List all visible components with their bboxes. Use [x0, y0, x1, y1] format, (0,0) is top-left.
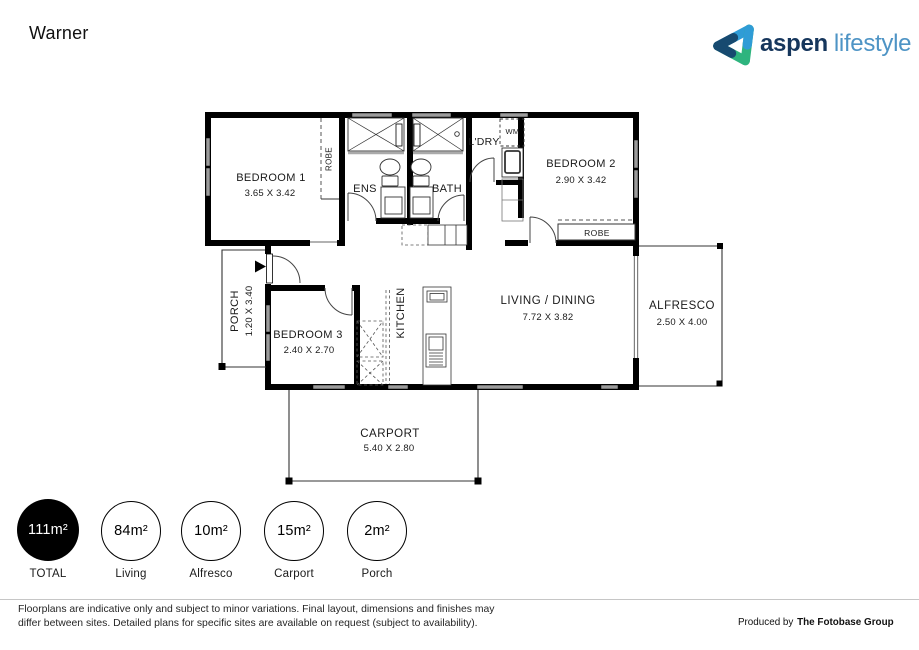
living-dining-dims: 7.72 X 3.82 — [523, 312, 574, 323]
alfresco-sliding-door — [633, 256, 639, 358]
living-area-circle: 84m² — [101, 501, 161, 561]
bath-label: BATH — [432, 183, 462, 195]
outdoor-outlines — [222, 246, 722, 481]
porch-area-label: Porch — [337, 568, 417, 580]
living-area-value: 84m² — [114, 523, 148, 539]
bedroom3-dims: 2.40 X 2.70 — [284, 345, 335, 356]
total-area-circle: 111m² — [17, 499, 79, 561]
area-alfresco: 10m² Alfresco — [171, 499, 251, 561]
alfresco-area-label: Alfresco — [171, 568, 251, 580]
total-area-value: 111m² — [28, 522, 68, 538]
bedroom2-dims: 2.90 X 3.42 — [556, 175, 607, 186]
carport-area-label: Carport — [254, 568, 334, 580]
alfresco-dims: 2.50 X 4.00 — [657, 317, 708, 328]
bedroom1-dims: 3.65 X 3.42 — [245, 188, 296, 199]
porch-dims: 1.20 X 3.40 — [244, 286, 255, 337]
bedroom3-label: BEDROOM 3 — [273, 329, 343, 341]
alfresco-label: ALFRESCO — [649, 300, 715, 312]
ensuite-label: ENS — [353, 183, 377, 195]
bedroom1-label: BEDROOM 1 — [236, 172, 306, 184]
produced-by: Produced byThe Fotobase Group — [738, 616, 894, 628]
produced-by-prefix: Produced by — [738, 616, 793, 628]
carport-dims: 5.40 X 2.80 — [364, 443, 415, 454]
carport-area-circle: 15m² — [264, 501, 324, 561]
area-total: 111m² TOTAL — [8, 499, 88, 561]
outline-corner-markers — [219, 243, 724, 485]
hall-cupboards — [402, 225, 467, 245]
alfresco-area-circle: 10m² — [181, 501, 241, 561]
entry-arrow-icon — [255, 261, 266, 273]
area-porch: 2m² Porch — [337, 499, 417, 561]
porch-label: PORCH — [229, 290, 241, 332]
carport-label: CARPORT — [360, 428, 420, 440]
living-area-label: Living — [91, 568, 171, 580]
alfresco-area-value: 10m² — [194, 523, 228, 539]
living-dining-label: LIVING / DINING — [500, 295, 595, 307]
total-area-label: TOTAL — [8, 568, 88, 580]
disclaimer-line1: Floorplans are indicative only and subje… — [18, 603, 494, 617]
bedroom2-robe-label: ROBE — [584, 228, 610, 238]
floorplan-page: Warner aspen lifestyle — [0, 0, 919, 650]
washing-machine-label: WM — [506, 127, 520, 136]
carport-area-value: 15m² — [277, 523, 311, 539]
laundry-label: L'DRY — [468, 136, 499, 148]
kitchen-label: KITCHEN — [395, 287, 407, 338]
producer-name: The Fotobase Group — [797, 616, 894, 628]
bedroom2-label: BEDROOM 2 — [546, 158, 616, 170]
footer-divider — [0, 599, 919, 600]
area-carport: 15m² Carport — [254, 499, 334, 561]
porch-area-circle: 2m² — [347, 501, 407, 561]
disclaimer-text: Floorplans are indicative only and subje… — [18, 603, 494, 631]
porch-area-value: 2m² — [364, 523, 390, 539]
bedroom1-robe-label: ROBE — [325, 147, 334, 171]
disclaimer-line2: differ between sites. Detailed plans for… — [18, 617, 494, 631]
area-living: 84m² Living — [91, 499, 171, 561]
